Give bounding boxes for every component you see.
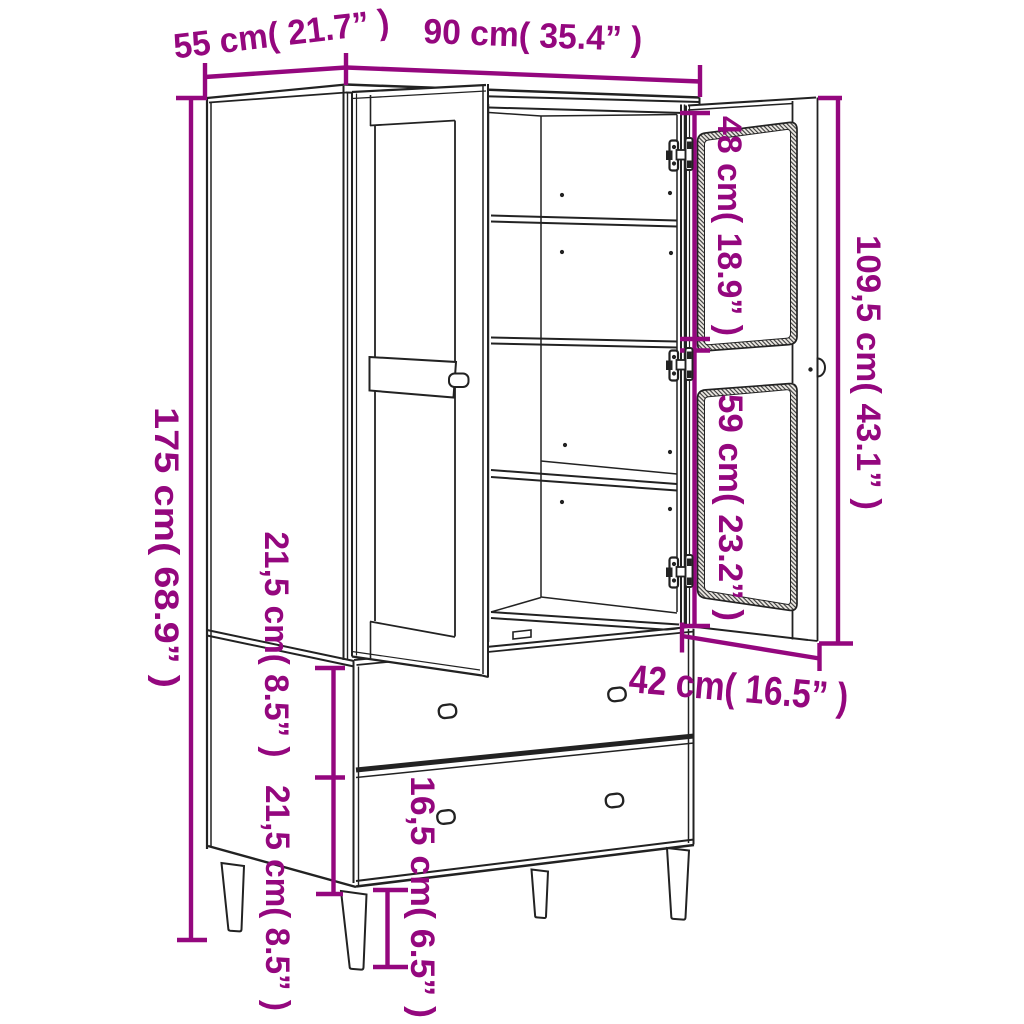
svg-text:109,5 cm( 43.1” ): 109,5 cm( 43.1” ) <box>849 235 887 510</box>
svg-text:21,5 cm( 8.5” ): 21,5 cm( 8.5” ) <box>257 532 295 758</box>
svg-text:175 cm( 68.9” ): 175 cm( 68.9” ) <box>147 407 185 688</box>
svg-text:16,5 cm( 6.5” ): 16,5 cm( 6.5” ) <box>403 776 441 1018</box>
svg-text:48 cm( 18.9” ): 48 cm( 18.9” ) <box>710 116 748 336</box>
svg-text:59 cm( 23.2” ): 59 cm( 23.2” ) <box>711 394 749 621</box>
svg-text:90 cm( 35.4” ): 90 cm( 35.4” ) <box>423 12 643 59</box>
svg-text:21,5 cm( 8.5” ): 21,5 cm( 8.5” ) <box>258 785 296 1011</box>
